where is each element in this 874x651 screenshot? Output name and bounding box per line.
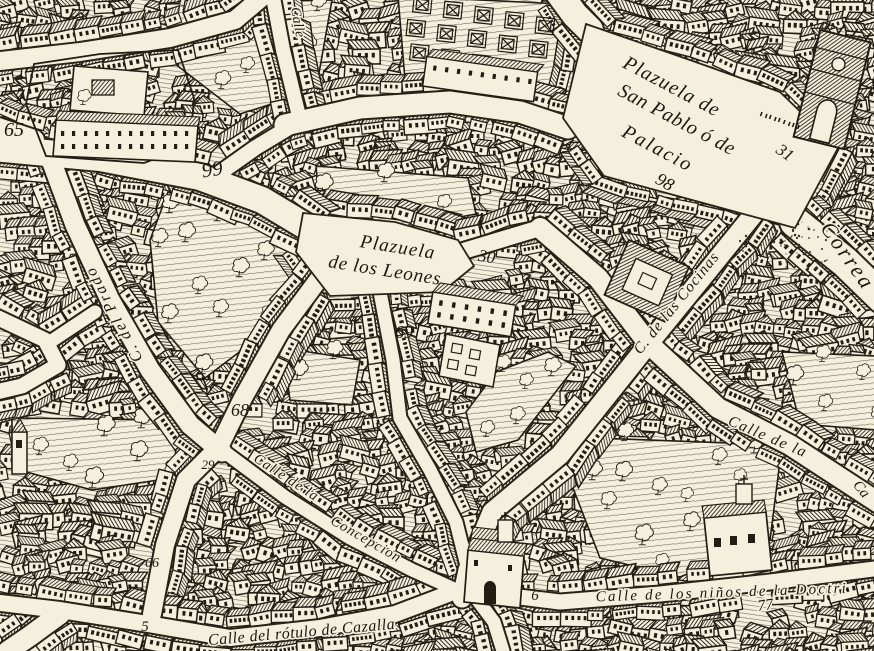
svg-text:29: 29	[202, 457, 216, 472]
svg-text:65: 65	[4, 119, 24, 141]
svg-text:69: 69	[395, 322, 413, 342]
svg-text:6: 6	[1, 339, 9, 356]
svg-text:68: 68	[231, 400, 249, 420]
svg-text:6: 6	[531, 588, 539, 604]
svg-text:99: 99	[200, 156, 225, 183]
svg-text:66: 66	[145, 556, 159, 571]
svg-text:30: 30	[476, 246, 497, 268]
svg-text:5: 5	[141, 619, 149, 635]
